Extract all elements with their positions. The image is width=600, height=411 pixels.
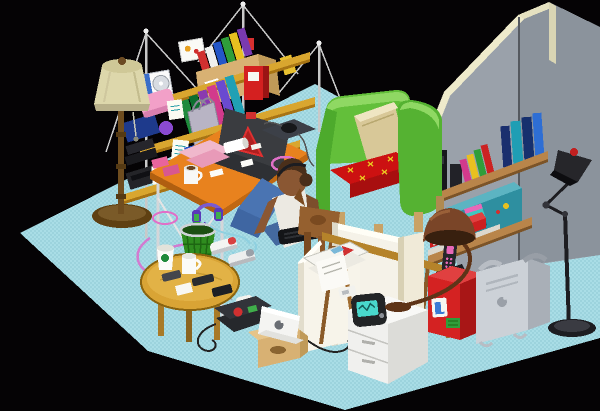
sticky-note-1 bbox=[167, 99, 184, 120]
anglepoise-red-cap bbox=[570, 148, 578, 156]
red-desk-item bbox=[246, 112, 256, 119]
pixel-art-room-scene bbox=[0, 0, 600, 411]
wall-corner-trim bbox=[549, 2, 556, 64]
red-first-aid-box bbox=[244, 66, 269, 100]
purple-ball bbox=[159, 121, 173, 135]
powermac-side bbox=[528, 258, 550, 330]
bronze-lamp-base bbox=[385, 302, 411, 312]
white-sticker bbox=[431, 298, 447, 318]
box-hand-hole bbox=[270, 346, 286, 354]
paper-cup bbox=[157, 245, 174, 271]
red-sticker bbox=[234, 308, 243, 317]
mouse bbox=[281, 123, 297, 133]
lamp-finial bbox=[118, 57, 126, 65]
table-leg-3 bbox=[186, 306, 192, 342]
radio bbox=[350, 292, 387, 327]
scene-canvas bbox=[0, 0, 600, 411]
person-hair-bun bbox=[300, 174, 313, 187]
green-sticker-box bbox=[446, 318, 460, 328]
